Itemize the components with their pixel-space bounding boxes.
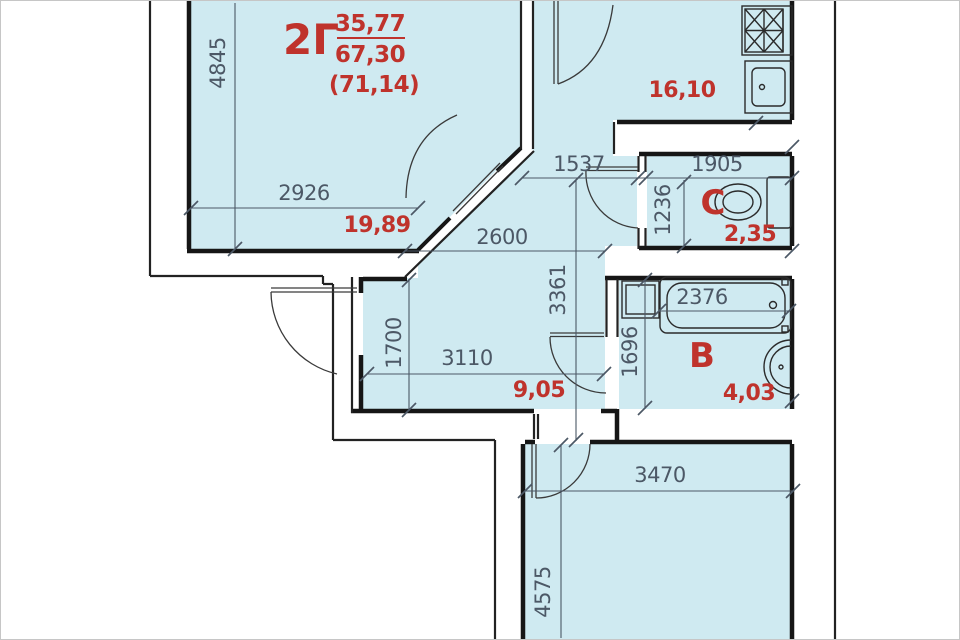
dim-3110: 3110 bbox=[441, 346, 492, 370]
wc-label: С bbox=[701, 183, 726, 223]
dim-1696: 1696 bbox=[618, 326, 642, 378]
dim-4845: 4845 bbox=[206, 37, 230, 88]
living-area-value: 35,77 bbox=[335, 11, 405, 37]
dim-2926: 2926 bbox=[278, 181, 330, 205]
wc-area: 2,35 bbox=[724, 222, 776, 247]
dim-1537: 1537 bbox=[553, 152, 604, 176]
hall-area: 9,05 bbox=[513, 378, 565, 403]
dim-3361: 3361 bbox=[546, 264, 570, 315]
dim-1700: 1700 bbox=[382, 317, 406, 368]
dim-2376: 2376 bbox=[676, 285, 728, 309]
total-area-value: 67,30 bbox=[335, 42, 405, 68]
dim-1905: 1905 bbox=[691, 152, 742, 176]
living-room-area: 19,89 bbox=[343, 213, 410, 238]
dim-4575: 4575 bbox=[531, 566, 555, 617]
area-with-balcony-value: (71,14) bbox=[329, 72, 419, 98]
floor-plan-drawing: 4845 2926 1537 1905 1236 2600 3361 1700 … bbox=[1, 1, 959, 639]
bathroom-label: В bbox=[689, 336, 715, 376]
dim-3470: 3470 bbox=[634, 463, 685, 487]
dim-1236: 1236 bbox=[651, 184, 675, 236]
floor-plan-screenshot: 4845 2926 1537 1905 1236 2600 3361 1700 … bbox=[0, 0, 960, 640]
apartment-type-label: 2Г bbox=[283, 15, 339, 64]
kitchen-area: 16,10 bbox=[648, 78, 715, 103]
entrance-door door-swing-arc-icon bbox=[271, 288, 357, 374]
bathroom-area: 4,03 bbox=[723, 381, 775, 406]
dim-2600: 2600 bbox=[476, 225, 527, 249]
